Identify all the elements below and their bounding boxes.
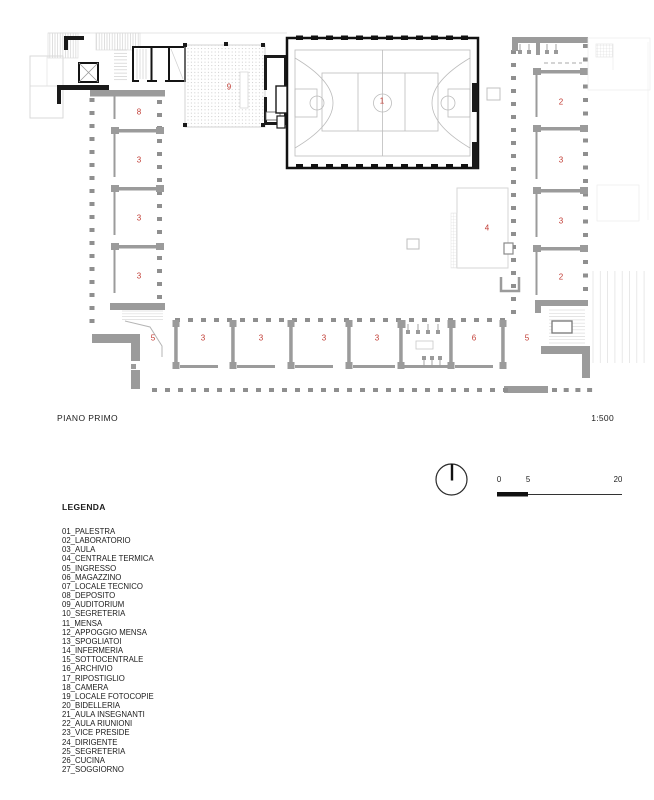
legend-item: 01_PALESTRA <box>62 527 154 536</box>
legend-item: 25_SEGRETERIA <box>62 747 154 756</box>
toilet-fixtures <box>518 44 558 54</box>
legend-item: 22_AULA RIUNIONI <box>62 719 154 728</box>
stair-treads <box>114 50 127 80</box>
north-arrow-icon <box>436 464 467 495</box>
legend-item: 23_VICE PRESIDE <box>62 728 154 737</box>
room-number-label: 3 <box>559 217 563 226</box>
entrance-southeast <box>504 310 592 393</box>
service-shafts <box>133 47 185 83</box>
legend-item: 10_SEGRETERIA <box>62 609 154 618</box>
auditorium <box>183 42 288 127</box>
legend-item: 14_INFERMERIA <box>62 646 154 655</box>
legend-item: 26_CUCINA <box>62 756 154 765</box>
wc-fixtures <box>406 324 442 367</box>
legend-item: 27_SOGGIORNO <box>62 765 154 774</box>
legend-item: 11_MENSA <box>62 619 154 628</box>
bottom-wing <box>92 311 508 392</box>
room-number-label: 3 <box>137 214 141 223</box>
left-wing <box>90 90 166 323</box>
room-number-label: 5 <box>151 334 155 343</box>
legend-items: 01_PALESTRA02_LABORATORIO03_AULA04_CENTR… <box>62 527 154 774</box>
scale-ratio: 1:500 <box>591 413 614 423</box>
room-number-label: 8 <box>137 108 141 117</box>
legend-item: 12_APPOGGIO MENSA <box>62 628 154 637</box>
colonnade-west <box>511 50 516 314</box>
room-number-label: 4 <box>485 224 489 233</box>
legend-item: 03_AULA <box>62 545 154 554</box>
room-number-label: 2 <box>559 273 563 282</box>
legend: LEGENDA 01_PALESTRA02_LABORATORIO03_AULA… <box>62 502 154 774</box>
colonnade-south <box>152 388 508 392</box>
elevator-shaft <box>79 63 98 82</box>
room-number-label: 5 <box>525 334 529 343</box>
legend-title: LEGENDA <box>62 502 154 512</box>
room-number-label: 2 <box>559 98 563 107</box>
room-number-label: 6 <box>472 334 476 343</box>
room-number-label: 3 <box>559 156 563 165</box>
entrance-southwest <box>92 311 163 389</box>
room-number-label: 1 <box>380 97 384 106</box>
facade-east <box>583 44 588 305</box>
legend-item: 04_CENTRALE TERMICA <box>62 554 154 563</box>
legend-item: 13_SPOGLIATOI <box>62 637 154 646</box>
room-number-label: 3 <box>375 334 379 343</box>
room-number-label: 3 <box>137 272 141 281</box>
room-number-label: 3 <box>259 334 263 343</box>
legend-item: 05_INGRESSO <box>62 564 154 573</box>
scale-bar-label: 0 <box>497 475 501 484</box>
legend-item: 20_BIDELLERIA <box>62 701 154 710</box>
room-number-label: 3 <box>322 334 326 343</box>
room-number-label: 3 <box>137 156 141 165</box>
legend-item: 08_DEPOSITO <box>62 591 154 600</box>
legend-item: 16_ARCHIVIO <box>62 664 154 673</box>
legend-item: 09_AUDITORIUM <box>62 600 154 609</box>
legend-item: 18_CAMERA <box>62 683 154 692</box>
room-number-label: 3 <box>201 334 205 343</box>
scale-bar <box>497 492 622 497</box>
legend-item: 21_AULA INSEGNANTI <box>62 710 154 719</box>
gym <box>276 36 478 170</box>
room-number-label: 9 <box>227 83 231 92</box>
scale-bar-label: 5 <box>526 475 530 484</box>
legend-item: 19_LOCALE FOTOCOPIE <box>62 692 154 701</box>
colonnade-west <box>90 98 95 323</box>
roof-outline <box>588 38 650 221</box>
legend-item: 02_LABORATORIO <box>62 536 154 545</box>
page-title: PIANO PRIMO <box>57 413 118 423</box>
legend-item: 17_RIPOSTIGLIO <box>62 674 154 683</box>
legend-item: 24_DIRIGENTE <box>62 738 154 747</box>
external-steps <box>593 271 644 363</box>
legend-item: 15_SOTTOCENTRALE <box>62 655 154 664</box>
legend-item: 06_MAGAZZINO <box>62 573 154 582</box>
drawing-sheet: 918333233245333365 PIANO PRIMO 1:500 052… <box>0 0 654 800</box>
legend-item: 07_LOCALE TECNICO <box>62 582 154 591</box>
scale-bar-label: 20 <box>614 475 623 484</box>
